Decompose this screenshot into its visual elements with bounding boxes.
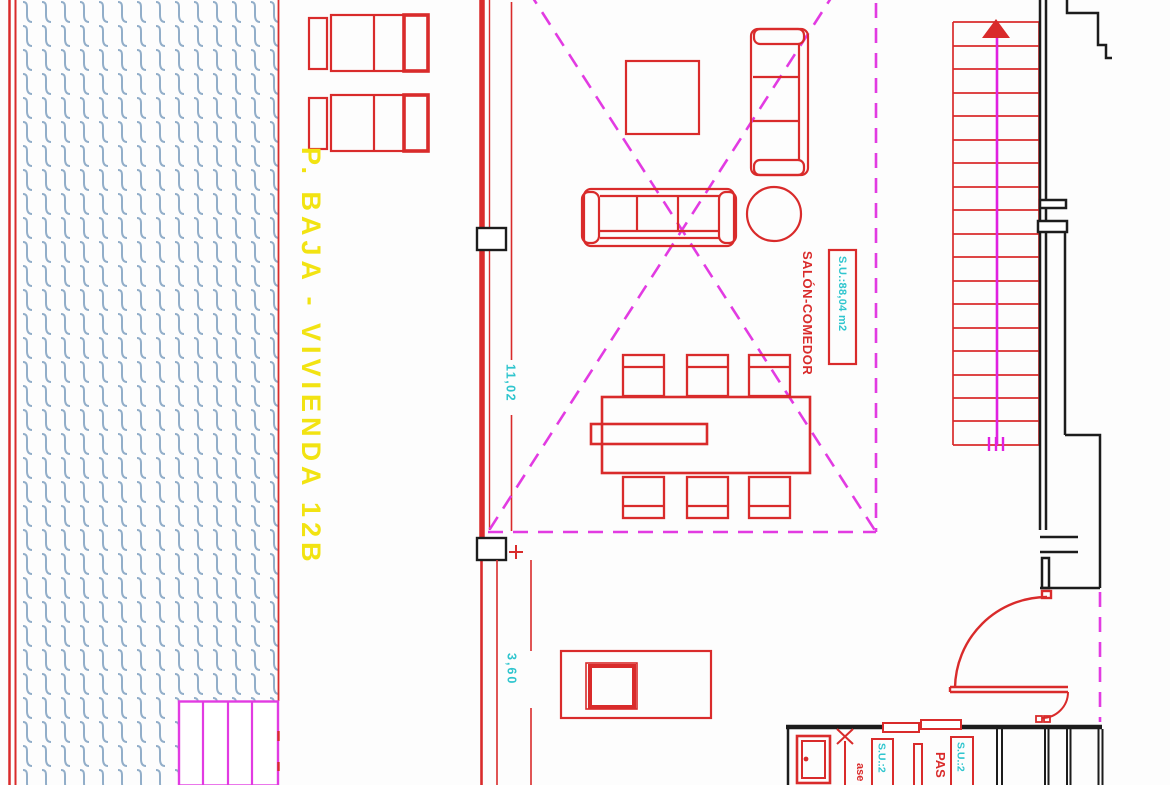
pasillo-fixture	[914, 744, 922, 785]
floorplan-canvas	[0, 0, 1170, 785]
black-walls	[1038, 0, 1112, 588]
dim-opening-width: 3,60	[505, 653, 518, 685]
loungers	[309, 15, 428, 151]
lounger-top	[309, 15, 428, 71]
side-table-round	[747, 187, 801, 241]
sofa-vertical	[751, 29, 808, 175]
terrace	[10, 0, 279, 785]
staircase	[953, 19, 1039, 451]
room-area-aseo: S.U.:2	[876, 743, 887, 773]
pillar-bottom	[477, 538, 506, 560]
aseo-door	[797, 736, 830, 783]
room-label-aseo: ase	[854, 763, 865, 781]
living-furniture	[582, 29, 808, 246]
entry-door-swing	[950, 591, 1068, 722]
lounger-bottom	[309, 95, 428, 151]
room-label-pasillo: PAS	[934, 752, 947, 778]
wall-break-mark-bottom	[837, 729, 853, 785]
pillar-top	[477, 228, 506, 250]
dining-bench	[591, 424, 707, 444]
wall-panel-1	[883, 723, 919, 732]
room-area-pasillo: S.U.:2	[955, 742, 966, 772]
terrace-hatch	[21, 0, 278, 785]
tv-unit	[561, 651, 711, 718]
floor-title: P. BAJA - VIVIENDA 12B	[297, 147, 324, 567]
wall-break-mark	[509, 545, 523, 559]
room-area-salon: S.U.:88,04 m2	[836, 256, 847, 331]
room-label-salon: SALÓN-COMEDOR	[801, 251, 814, 375]
coffee-table	[626, 61, 699, 134]
salon-boundary-dashed	[488, 0, 876, 532]
bottom-partitions	[997, 729, 1103, 785]
terrace-steps	[179, 701, 279, 785]
wall-panel-2	[921, 720, 961, 729]
floorplan-page: { "drawing": { "floor_title": "P. BAJA -…	[0, 0, 1170, 785]
stair-walkline-end-ticks	[989, 437, 1003, 451]
dining-chairs-bottom	[623, 477, 790, 518]
dim-salon-depth: 11,02	[504, 364, 517, 402]
tv-screen	[590, 666, 634, 707]
sofa-horizontal	[582, 189, 736, 246]
